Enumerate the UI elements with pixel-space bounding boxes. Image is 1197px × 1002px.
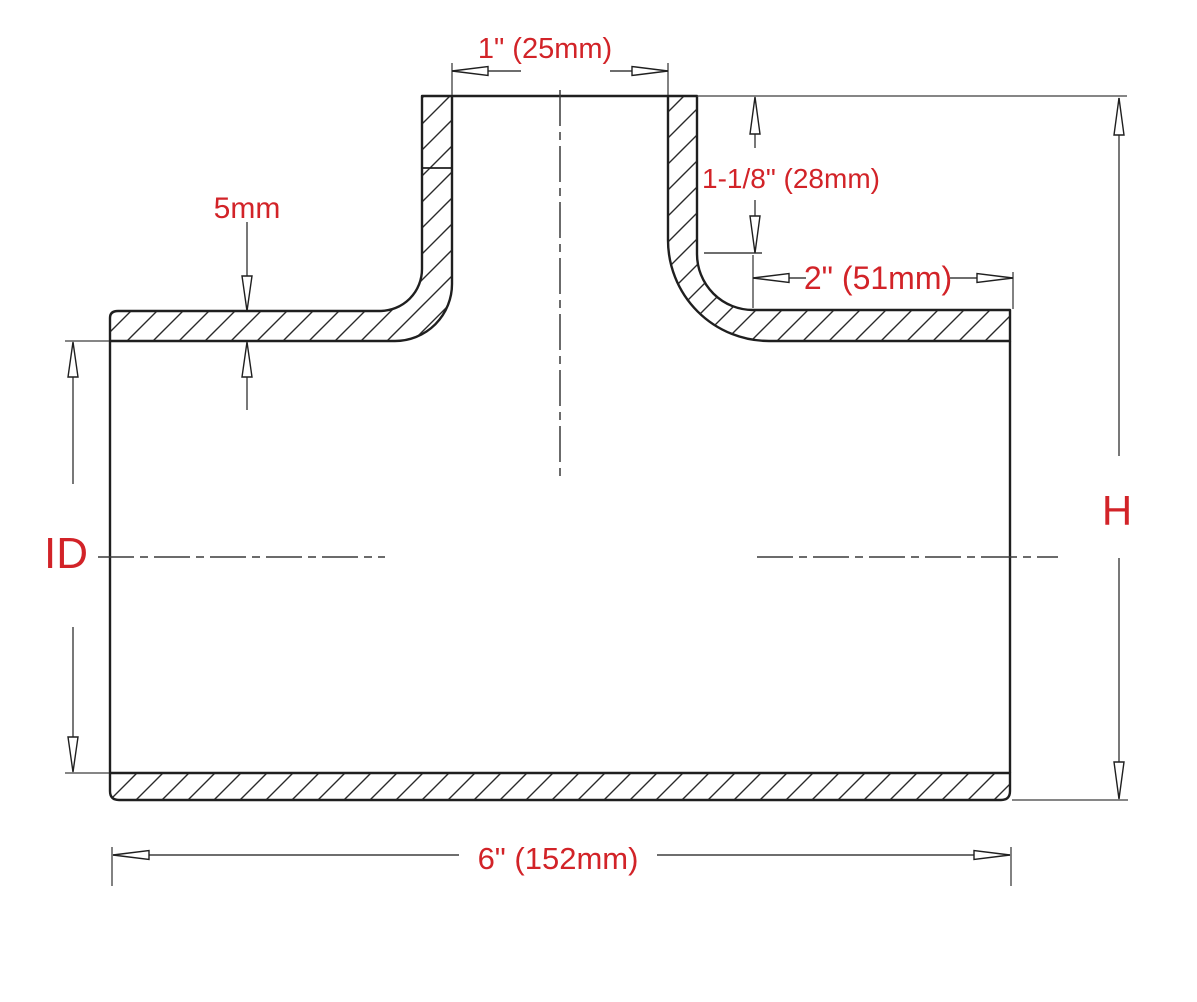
stub-height-dimension-label: 1-1/8" (28mm)	[702, 163, 880, 194]
branch-id-dimension-label: 1" (25mm)	[478, 33, 612, 65]
id-bottom-arrow	[68, 737, 78, 772]
length-dimension-label: 6" (152mm)	[478, 841, 639, 876]
upper-left-wall-section	[110, 96, 452, 341]
h-bottom-arrow	[1114, 762, 1124, 799]
stub-height-top-arrow	[750, 97, 760, 134]
h-extension-lines	[697, 96, 1128, 800]
id-dimension-label: ID	[44, 529, 88, 578]
id-top-arrow	[68, 342, 78, 377]
branch-id-right-arrow	[632, 67, 668, 76]
t-coupler-section-drawing: 1" (25mm) 1-1/8" (28mm) 2" (51mm) 5mm ID…	[0, 0, 1197, 1002]
shoulder-dimension-label: 2" (51mm)	[804, 260, 952, 296]
bottom-wall-section	[110, 773, 1010, 800]
branch-id-left-arrow	[452, 67, 488, 76]
length-left-arrow	[113, 851, 149, 860]
shoulder-left-arrow	[753, 274, 789, 283]
stub-height-bottom-arrow	[750, 216, 760, 253]
h-top-arrow	[1114, 98, 1124, 135]
wall-thickness-bottom-arrow	[242, 342, 252, 377]
wall-thickness-top-arrow	[242, 276, 252, 311]
length-right-arrow	[974, 851, 1010, 860]
shoulder-right-arrow	[977, 274, 1013, 283]
upper-right-wall-section	[668, 96, 1010, 341]
technical-drawing: 1" (25mm) 1-1/8" (28mm) 2" (51mm) 5mm ID…	[0, 0, 1197, 1002]
h-dimension-label: H	[1102, 487, 1132, 534]
wall-thickness-dimension-label: 5mm	[214, 192, 281, 225]
